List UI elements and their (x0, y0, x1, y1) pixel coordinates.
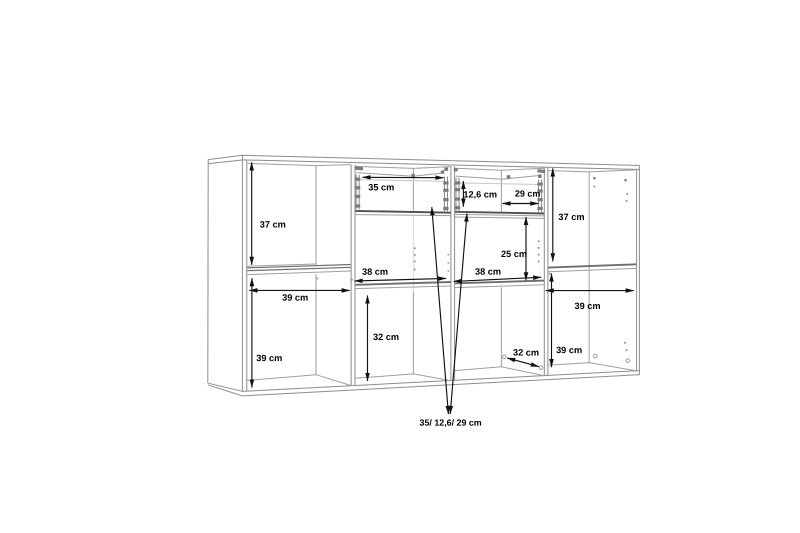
svg-text:29 cm: 29 cm (515, 189, 541, 199)
svg-text:39 cm: 39 cm (256, 353, 282, 363)
svg-text:35/ 12,6/ 29 cm: 35/ 12,6/ 29 cm (420, 418, 482, 428)
svg-text:35 cm: 35 cm (368, 182, 394, 192)
svg-text:39 cm: 39 cm (282, 293, 308, 303)
svg-text:25 cm: 25 cm (501, 249, 527, 259)
svg-text:39 cm: 39 cm (556, 345, 582, 355)
svg-text:32 cm: 32 cm (373, 332, 399, 342)
svg-text:32 cm: 32 cm (513, 348, 539, 358)
svg-text:38 cm: 38 cm (475, 267, 501, 277)
svg-text:39 cm: 39 cm (574, 301, 600, 311)
svg-text:37 cm: 37 cm (558, 212, 584, 222)
svg-text:12,6 cm: 12,6 cm (463, 190, 497, 200)
svg-text:37 cm: 37 cm (260, 220, 286, 230)
svg-text:38 cm: 38 cm (362, 267, 388, 277)
